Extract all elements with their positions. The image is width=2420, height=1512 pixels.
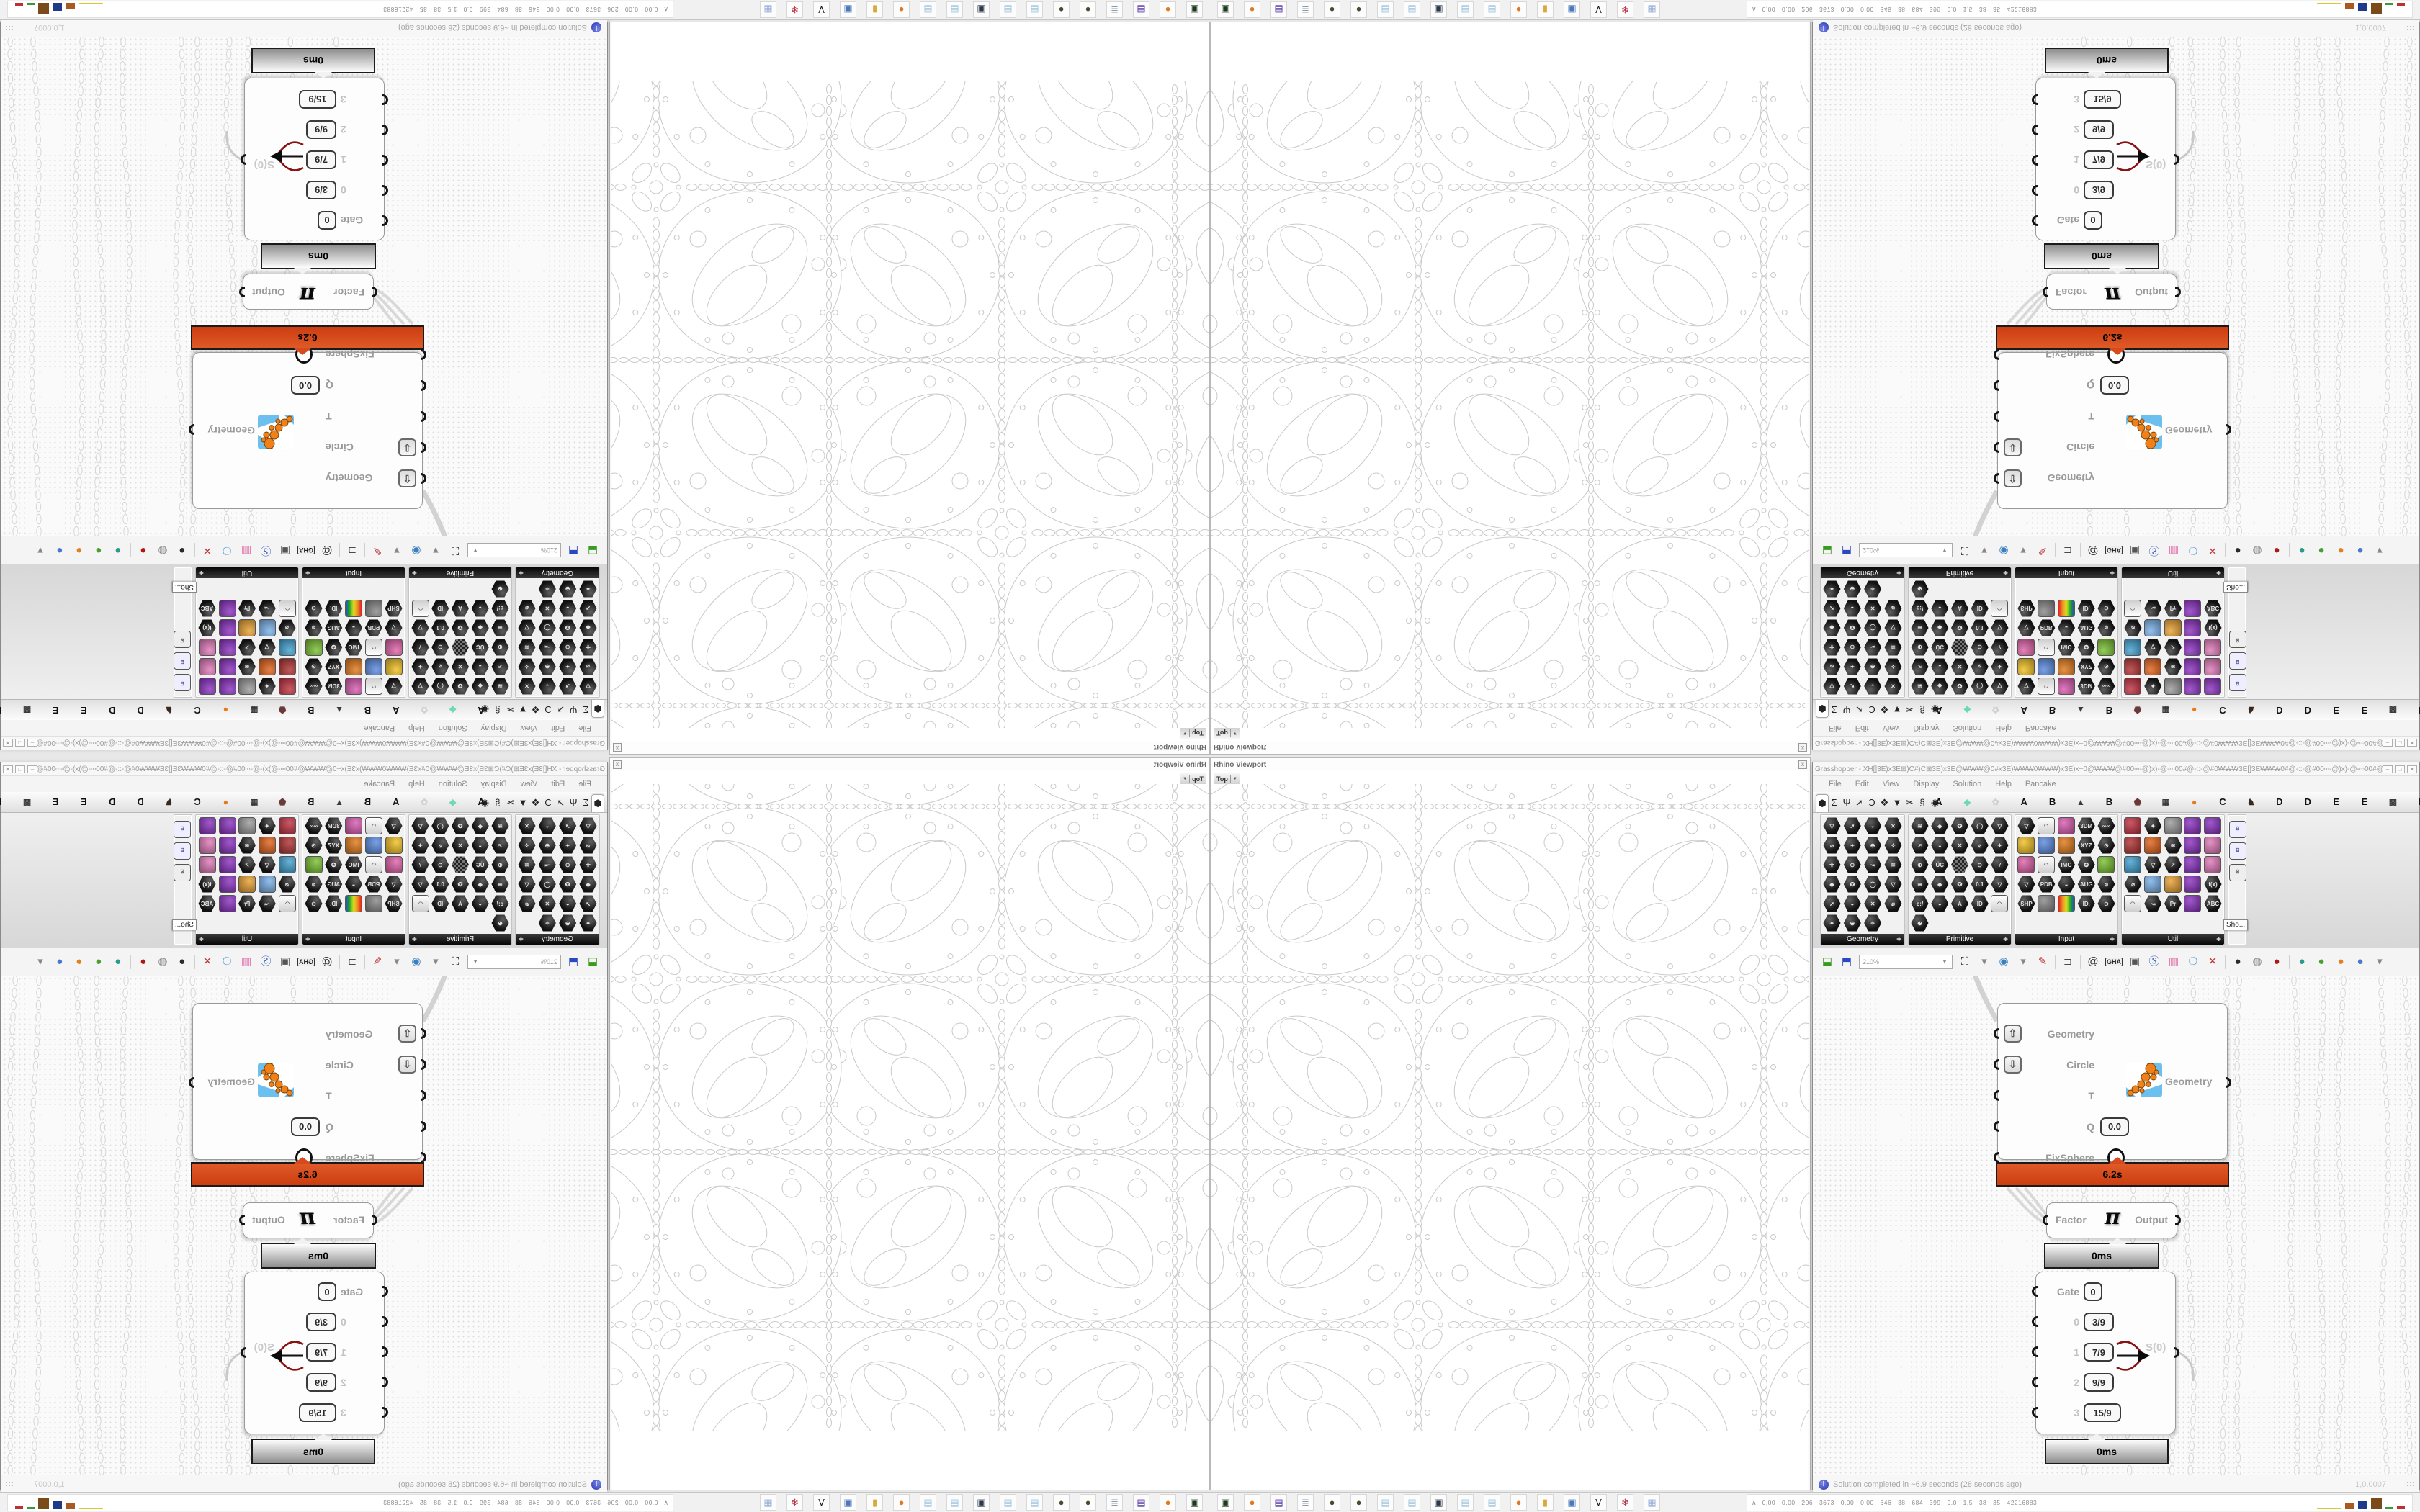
gha-icon[interactable]: GHA [2105, 958, 2123, 966]
ribbon-panel-label[interactable]: Util✚ [2122, 567, 2224, 578]
component-icon[interactable] [279, 639, 296, 656]
component-icon[interactable] [2204, 837, 2221, 854]
component-icon[interactable]: c:/ [1911, 895, 1929, 912]
component-icon[interactable]: ◠ [412, 600, 429, 617]
component-icon[interactable] [279, 678, 296, 695]
component-icon[interactable]: ID. [325, 895, 343, 912]
script-icon[interactable]: ≣ [1106, 1, 1123, 18]
gha-icon[interactable]: GHA [297, 958, 315, 966]
ribbon-panel-label[interactable]: Input✚ [2015, 934, 2117, 945]
preview-eye-icon[interactable]: ◉ [409, 543, 423, 557]
ribbon-panel-label[interactable]: Geometry✚ [1821, 567, 1904, 578]
component-icon[interactable]: ↝ [258, 600, 276, 617]
component-icon[interactable]: ▽ [518, 619, 536, 636]
tab-vector[interactable]: ➚ [555, 701, 567, 718]
computer-icon[interactable]: ▣ [1430, 1, 1447, 18]
quality-med-icon[interactable]: ● [2314, 543, 2329, 557]
component-icon[interactable] [346, 658, 363, 675]
component-icon[interactable]: ➚ [559, 817, 577, 834]
component-icon[interactable] [452, 856, 470, 873]
component-icon[interactable]: f(x) [2204, 876, 2222, 893]
tab-vector[interactable]: ➚ [1854, 701, 1865, 718]
component-icon[interactable]: ⊕ [1911, 856, 1929, 873]
component-icon[interactable] [2038, 895, 2055, 912]
close-icon[interactable]: ✕ [2407, 765, 2417, 773]
quality-low-icon[interactable]: ● [111, 955, 125, 969]
component-icon[interactable]: ◆ [1931, 876, 1949, 893]
input-grip[interactable] [1994, 1059, 1999, 1070]
input-grip[interactable] [2032, 215, 2038, 226]
menu-view[interactable]: View [1883, 780, 1900, 788]
grasshopper-title-bar[interactable]: Grasshopper - XH[]3E)x3E⊞)C#)C⊞3E)x3E@₩₩… [1813, 736, 2419, 750]
component-icon[interactable]: ⌀ [1823, 837, 1841, 854]
value-box[interactable]: 9/9 [2084, 1373, 2114, 1392]
output-grip[interactable] [239, 1215, 245, 1225]
component-icon[interactable]: ⌸ [174, 674, 191, 691]
flower-icon[interactable]: ✿ [1988, 703, 2004, 717]
input-grip[interactable] [2032, 1346, 2038, 1357]
tab-params[interactable]: ⬢ [1816, 794, 1829, 812]
input-grip[interactable] [1994, 380, 1999, 391]
component-icon[interactable]: ⊕ [491, 856, 509, 873]
dropdown-icon[interactable]: ▾ [2016, 543, 2030, 557]
shield-icon[interactable]: ⬟ [2130, 795, 2146, 809]
exit-door-icon[interactable]: ⊐ [2061, 543, 2075, 557]
bird-icon[interactable]: ♞ [2243, 795, 2259, 809]
ribbon-panel-label[interactable]: Geometry✚ [1821, 934, 1904, 945]
exit-door-icon[interactable]: ⊐ [345, 543, 359, 557]
component-icon[interactable]: ✪ [2077, 639, 2095, 656]
menu-solution[interactable]: Solution [439, 780, 467, 788]
component-icon[interactable]: 0.1 [1971, 876, 1989, 893]
preview-off-icon[interactable]: ● [2231, 955, 2245, 969]
grasshopper-canvas[interactable]: Geometry ⇧ Circle ⇩ T Q 0.0 FixSphere [1813, 976, 2419, 1475]
component-icon[interactable]: ✦ [1843, 658, 1861, 675]
input-grip[interactable] [1994, 1121, 1999, 1132]
component-icon[interactable]: ◒ [345, 619, 363, 636]
tab-plugin-A-0[interactable]: A [473, 795, 489, 809]
component-icon[interactable]: ▽ [385, 817, 403, 834]
grasshopper-canvas[interactable]: Geometry ⇧ Circle ⇩ T Q 0.0 FixSphere [1, 37, 607, 536]
component-icon[interactable] [2164, 619, 2182, 636]
notepad-icon[interactable]: ▤ [1377, 1, 1394, 18]
tab-surface[interactable]: ❖ [530, 794, 542, 811]
component-icon[interactable]: ➚ [2164, 639, 2182, 656]
preview-wire-icon[interactable]: ◍ [156, 955, 170, 969]
component-icon[interactable] [2124, 817, 2141, 834]
component-icon[interactable]: ◠ [1991, 600, 2008, 617]
viewport-tab-top[interactable]: Top ▼ [1180, 727, 1206, 739]
component-icon[interactable]: ⊙ [305, 895, 323, 912]
component-icon[interactable]: ◒ [471, 837, 489, 854]
component-icon[interactable] [2144, 876, 2161, 893]
component-icon[interactable]: ⊙ [305, 600, 323, 617]
dropdown-icon[interactable]: ▾ [1977, 955, 1991, 969]
value-box[interactable]: 7/9 [306, 1343, 336, 1362]
component-icon[interactable]: ID. [325, 600, 343, 617]
component-icon[interactable] [2058, 895, 2075, 912]
quality-low-icon[interactable]: ● [111, 543, 125, 557]
component-icon[interactable]: ➚ [1823, 600, 1841, 617]
component-icon[interactable]: ◯ [1864, 619, 1882, 636]
component-icon[interactable]: ✦ [258, 817, 276, 834]
tab-plugin-E-15[interactable]: E [48, 703, 63, 717]
sketch-pen-icon[interactable]: ✎ [2035, 543, 2050, 557]
notepad-icon[interactable]: ▤ [1026, 1494, 1043, 1511]
component-icon[interactable]: ⌹ [2229, 652, 2246, 670]
notepad-icon[interactable]: ▤ [1404, 1494, 1420, 1511]
component-icon[interactable]: ◒ [471, 658, 489, 675]
component-icon[interactable]: 7 [1991, 856, 2009, 873]
close-icon[interactable]: ✕ [3, 765, 13, 773]
v-app-icon[interactable]: V [1590, 1494, 1607, 1511]
component-icon[interactable]: ◯ [538, 876, 556, 893]
component-icon[interactable]: ⊙ [1843, 639, 1861, 656]
v-app-icon[interactable]: V [813, 1, 830, 18]
component-icon[interactable]: ∞∞ [305, 817, 323, 834]
component-icon[interactable]: ◠ [2038, 817, 2055, 834]
component-icon[interactable]: ◒ [1931, 837, 1949, 854]
tab-plugin-D-12[interactable]: D [133, 703, 148, 717]
menu-file[interactable]: File [1829, 724, 1842, 732]
gha-icon[interactable]: GHA [2105, 546, 2123, 554]
component-icon[interactable]: 7 [411, 856, 429, 873]
component-icon[interactable]: ✧ [1864, 580, 1882, 598]
component-icon[interactable]: ⌀ [278, 619, 296, 636]
input-grip[interactable] [2032, 155, 2038, 166]
component-icon[interactable]: ▽ [579, 817, 597, 834]
preview-wire-icon[interactable]: ◍ [2250, 543, 2264, 557]
component-icon[interactable]: ▽ [1991, 678, 2009, 695]
component-icon[interactable]: ≋ [1911, 817, 1929, 834]
menu-view[interactable]: View [521, 724, 538, 732]
component-icon[interactable]: ➚ [238, 856, 256, 873]
component-icon[interactable] [2058, 658, 2075, 675]
tab-sets[interactable]: Ψ [1841, 794, 1852, 811]
tab-plugin-E-14[interactable]: E [76, 703, 91, 717]
output-grip[interactable] [241, 154, 246, 165]
component-icon[interactable]: A [452, 895, 470, 912]
value-box[interactable]: 15/9 [2084, 90, 2121, 109]
grenade-icon[interactable]: ● [1350, 1, 1367, 18]
component-icon[interactable] [365, 837, 382, 854]
component-icon[interactable] [219, 856, 236, 873]
dropdown-icon[interactable]: ▾ [429, 955, 443, 969]
grasshopper-canvas[interactable]: Geometry ⇧ Circle ⇩ T Q 0.0 FixSphere [1, 976, 607, 1475]
component-icon[interactable] [279, 817, 296, 834]
component-icon[interactable]: ◆ [1823, 876, 1841, 893]
component-icon[interactable]: ✦ [559, 658, 577, 675]
component-icon[interactable]: Pr [2164, 600, 2182, 617]
component-icon[interactable]: ABC [198, 600, 216, 617]
component-icon[interactable]: ID. [2077, 600, 2095, 617]
notepad-icon[interactable]: ▤ [1000, 1494, 1016, 1511]
tab-plugin-D-12[interactable]: D [133, 795, 148, 809]
component-icon[interactable]: 7 [1991, 639, 2009, 656]
component-icon[interactable]: SHP [385, 895, 403, 912]
component-icon[interactable]: ◠ [2038, 856, 2055, 873]
component-icon[interactable]: ∞∞ [2097, 678, 2115, 695]
component-icon[interactable] [2184, 619, 2201, 636]
component-icon[interactable] [2124, 837, 2141, 854]
component-icon[interactable]: ◠ [2038, 639, 2055, 656]
component-icon[interactable]: ▽ [411, 678, 429, 695]
component-icon[interactable]: ✪ [1951, 876, 1969, 893]
viewport-tab-top[interactable]: Top ▼ [1214, 727, 1240, 739]
minimize-icon[interactable]: – [2383, 765, 2393, 773]
component-icon[interactable]: ▽ [1823, 678, 1841, 695]
component-icon[interactable]: ⊙ [2097, 600, 2115, 617]
down-arrow-icon[interactable]: ⇩ [2004, 438, 2022, 456]
factor-component[interactable]: Factor π Output [243, 1202, 374, 1238]
component-icon[interactable]: Pr [238, 895, 256, 912]
component-icon[interactable]: XYZ [2077, 658, 2095, 675]
component-icon[interactable]: ABC [2204, 600, 2222, 617]
zoom-level-dropdown[interactable]: 210% ▼ [1859, 543, 1953, 557]
component-icon[interactable]: ➚ [1911, 658, 1929, 675]
component-icon[interactable]: ⌀ [2097, 876, 2115, 893]
component-icon[interactable]: ✪ [1843, 619, 1861, 636]
dot-icon[interactable]: ● [218, 703, 233, 717]
component-icon[interactable]: ⌀ [518, 600, 536, 617]
component-icon[interactable]: ➚ [2164, 856, 2182, 873]
open-file-icon[interactable]: ⬓ [586, 543, 600, 557]
maximize-icon[interactable]: □ [2395, 765, 2405, 773]
component-icon[interactable] [2038, 837, 2055, 854]
quality-high-icon[interactable]: ● [2334, 543, 2348, 557]
folder-icon[interactable]: ▮ [866, 1, 883, 18]
tab-mesh[interactable]: ▼ [517, 701, 529, 718]
component-icon[interactable] [2058, 817, 2075, 834]
component-icon[interactable]: SHP [2017, 600, 2035, 617]
quality-max-icon[interactable]: ● [53, 543, 67, 557]
component-icon[interactable] [2038, 600, 2055, 617]
component-icon[interactable]: ⊙ [2097, 895, 2115, 912]
component-icon[interactable] [199, 639, 216, 656]
tab-mesh[interactable]: ▼ [517, 794, 529, 811]
component-icon[interactable]: ID [1971, 895, 1989, 912]
settings-app-icon[interactable]: ▣ [1564, 1, 1580, 18]
firefox-icon[interactable]: ● [1244, 1, 1260, 18]
component-icon[interactable]: c:/ [491, 600, 509, 617]
component-icon[interactable] [279, 658, 296, 675]
menu-pancake[interactable]: Pancake [364, 724, 395, 732]
menu-help[interactable]: Help [408, 724, 425, 732]
component-icon[interactable] [346, 895, 363, 912]
folder-icon[interactable]: ▮ [1537, 1, 1554, 18]
menu-pancake[interactable]: Pancake [364, 780, 395, 788]
tab-plugin-E-15[interactable]: E [2357, 795, 2372, 809]
sketch-pen-icon[interactable]: ✎ [2035, 955, 2050, 969]
quality-low-icon[interactable]: ● [2295, 955, 2309, 969]
component-icon[interactable]: ABC [2204, 895, 2222, 912]
tab-plugin-E-14[interactable]: E [76, 795, 91, 809]
settings-app-icon[interactable]: ▣ [1564, 1494, 1580, 1511]
component-icon[interactable]: ◒ [1864, 817, 1882, 834]
component-icon[interactable]: PDB [364, 876, 382, 893]
component-icon[interactable]: ⊙ [1843, 856, 1861, 873]
dots-grid-icon[interactable]: ▩ [19, 703, 35, 717]
grid-icon[interactable]: ▦ [2158, 703, 2174, 717]
q-value-box[interactable]: 0.0 [2100, 377, 2129, 395]
tab-maths[interactable]: Σ [1829, 701, 1840, 718]
component-icon[interactable]: ÜÇ [1931, 639, 1949, 656]
tab-plugin-E-15[interactable]: E [2357, 703, 2372, 717]
firefox-icon[interactable]: ● [1160, 1494, 1176, 1511]
grasshopper-title-bar[interactable]: Grasshopper - XH[]3E)x3E⊞)C#)C⊞3E)x3E@₩₩… [1, 762, 607, 776]
component-icon[interactable]: ⊕ [491, 914, 509, 932]
component-icon[interactable]: ⊙ [559, 856, 577, 873]
component-icon[interactable]: ⊙ [431, 856, 449, 873]
grasshopper-title-bar[interactable]: Grasshopper - XH[]3E)x3E⊞)C#)C⊞3E)x3E@₩₩… [1813, 762, 2419, 776]
quality-max-icon[interactable]: ● [53, 955, 67, 969]
component-icon[interactable]: ✪ [1951, 817, 1969, 834]
component-icon[interactable]: ▽ [258, 639, 276, 656]
component-icon[interactable]: ⊕ [1864, 658, 1882, 675]
wire-display-icon[interactable]: ✕ [200, 955, 215, 969]
balloon-icon[interactable]: ❍ [2186, 543, 2200, 557]
dropdown-icon[interactable]: ▾ [33, 543, 48, 557]
component-icon[interactable]: ◠ [412, 895, 429, 912]
component-icon[interactable]: ✪ [559, 619, 577, 636]
calculator-icon[interactable]: ▦ [1644, 1, 1660, 18]
component-icon[interactable]: ⊕ [1911, 639, 1929, 656]
gem-icon[interactable]: ◆ [1959, 795, 1975, 809]
component-icon[interactable] [2097, 856, 2115, 873]
computer-icon[interactable]: ▣ [1430, 1494, 1447, 1511]
ribbon-panel-label[interactable]: Geometry✚ [516, 934, 599, 945]
component-icon[interactable]: ✕ [518, 678, 536, 695]
component-icon[interactable]: ◒ [2058, 876, 2076, 893]
flower-icon[interactable]: ✿ [416, 703, 432, 717]
viewport-canvas[interactable] [611, 22, 1209, 728]
firefox-icon[interactable]: ● [1510, 1, 1527, 18]
component-icon[interactable]: ⌀ [278, 876, 296, 893]
component-icon[interactable]: ⌀ [579, 658, 597, 675]
dots-grid-icon[interactable]: ▩ [2385, 703, 2401, 717]
zoom-level-dropdown[interactable]: 210% ▼ [1859, 955, 1953, 969]
menu-pancake[interactable]: Pancake [2025, 780, 2056, 788]
notepad-icon[interactable]: ▤ [946, 1494, 963, 1511]
component-icon[interactable] [239, 678, 256, 695]
ribbon-panel-label[interactable]: Input✚ [2015, 567, 2117, 578]
quality-max-icon[interactable]: ● [2353, 543, 2367, 557]
search-icon[interactable]: Ⓢ [2147, 955, 2161, 969]
tab-plugin-C-10[interactable]: C [189, 703, 205, 717]
component-icon[interactable]: ✦ [1991, 837, 2009, 854]
dots-grid-icon[interactable]: ▩ [2385, 795, 2401, 809]
component-icon[interactable]: ✪ [452, 876, 470, 893]
component-icon[interactable] [385, 639, 403, 656]
component-icon[interactable]: ◯ [1971, 817, 1989, 834]
notepad-icon[interactable]: ▤ [920, 1494, 936, 1511]
preview-shaded-icon[interactable]: ● [136, 543, 151, 557]
component-icon[interactable]: ◆ [579, 876, 597, 893]
component-icon[interactable]: ≋ [238, 658, 256, 675]
output-grip[interactable] [239, 287, 245, 297]
close-icon[interactable]: x [1798, 760, 1807, 769]
component-icon[interactable] [259, 619, 276, 636]
preview-shaded-icon[interactable]: ● [2269, 955, 2284, 969]
component-icon[interactable] [2164, 876, 2182, 893]
component-icon[interactable]: SHP [385, 600, 403, 617]
component-icon[interactable]: ↝ [538, 856, 556, 873]
folder-icon[interactable]: ▮ [1537, 1494, 1554, 1511]
component-icon[interactable]: ✦ [559, 837, 577, 854]
component-icon[interactable] [2017, 639, 2035, 656]
dropdown-icon[interactable]: ▾ [33, 955, 48, 969]
component-icon[interactable]: ⌺ [2229, 631, 2246, 648]
component-icon[interactable]: ▽ [1991, 876, 2009, 893]
tab-params[interactable]: ⬢ [1816, 700, 1829, 718]
component-icon[interactable]: ID. [2077, 895, 2095, 912]
exit-door-icon[interactable]: ⊐ [2061, 955, 2075, 969]
chevron-down-icon[interactable]: ▼ [1940, 957, 1949, 967]
tab-maths[interactable]: Σ [1829, 794, 1840, 811]
component-icon[interactable] [199, 678, 216, 695]
notepad-icon[interactable]: ▤ [1404, 1, 1420, 18]
maximize-icon[interactable]: □ [15, 739, 25, 747]
component-icon[interactable]: ◒ [1843, 600, 1861, 617]
ribbon-panel-label[interactable]: Primitive✚ [1909, 567, 2011, 578]
component-icon[interactable]: ⊙ [2097, 658, 2115, 675]
search-icon[interactable]: Ⓢ [259, 955, 273, 969]
chevron-down-icon[interactable]: ▼ [1233, 732, 1237, 736]
maximize-icon[interactable]: □ [15, 765, 25, 773]
component-icon[interactable] [219, 658, 236, 675]
menu-display[interactable]: Display [481, 780, 507, 788]
viewport-canvas[interactable] [1211, 22, 1809, 728]
q-value-box[interactable]: 0.0 [291, 377, 320, 395]
tab-plugin-E-15[interactable]: E [48, 795, 63, 809]
component-icon[interactable]: SHP [2017, 895, 2035, 912]
component-icon[interactable]: ◆ [579, 619, 597, 636]
component-icon[interactable]: ✜ [1823, 856, 1841, 873]
grenade-icon[interactable]: ● [1080, 1, 1096, 18]
input-grip[interactable] [1994, 442, 1999, 453]
component-icon[interactable] [219, 817, 236, 834]
input-grip[interactable] [2032, 1377, 2038, 1387]
dropdown-icon[interactable]: ▾ [1977, 543, 1991, 557]
menu-display[interactable]: Display [1913, 780, 1939, 788]
tab-params[interactable]: ⬢ [591, 700, 604, 718]
grasshopper-canvas[interactable]: Geometry ⇧ Circle ⇩ T Q 0.0 FixSphere [1813, 37, 2419, 536]
component-icon[interactable] [2017, 837, 2035, 854]
dot-icon[interactable]: ● [2187, 795, 2202, 809]
mountain-icon[interactable]: ▲ [331, 703, 347, 717]
ribbon-panel-label[interactable]: Input✚ [302, 934, 405, 945]
close-icon[interactable]: x [613, 760, 622, 769]
component-icon[interactable] [385, 658, 403, 675]
fixsphere-component[interactable]: Geometry ⇧ Circle ⇩ T Q 0.0 FixSphere [1997, 352, 2228, 509]
component-icon[interactable]: ≋ [491, 876, 509, 893]
computer-icon[interactable]: ▣ [973, 1494, 990, 1511]
input-grip[interactable] [2032, 1286, 2038, 1297]
input-grip[interactable] [2032, 1407, 2038, 1418]
component-icon[interactable]: ◆ [471, 817, 489, 834]
component-icon[interactable] [199, 856, 216, 873]
component-icon[interactable]: ⊕ [1864, 837, 1882, 854]
value-box[interactable]: 9/9 [306, 120, 336, 139]
preview-eye-icon[interactable]: ◉ [1996, 955, 2011, 969]
component-icon[interactable]: ▽ [1991, 817, 2009, 834]
component-icon[interactable] [346, 678, 363, 695]
dot-icon[interactable]: ● [2187, 703, 2202, 717]
input-grip[interactable] [2043, 287, 2048, 297]
component-icon[interactable]: ▽ [2017, 678, 2035, 695]
tab-plugin-D-13[interactable]: D [2300, 795, 2316, 809]
component-icon[interactable] [1951, 856, 1969, 873]
